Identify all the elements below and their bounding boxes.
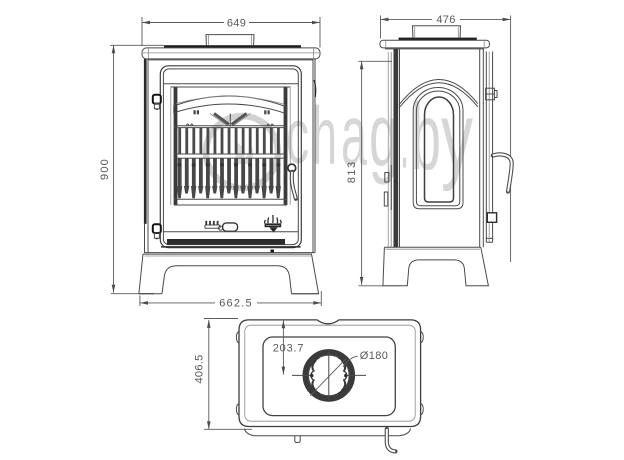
svg-text:813: 813 <box>346 160 358 183</box>
svg-text:649: 649 <box>227 17 246 29</box>
svg-text:h: h <box>312 91 337 182</box>
svg-text:y: y <box>441 82 473 192</box>
svg-text:662.5: 662.5 <box>219 298 253 310</box>
svg-text:476: 476 <box>436 14 455 26</box>
svg-text:Ø180: Ø180 <box>360 350 389 362</box>
svg-text:900: 900 <box>99 158 111 180</box>
svg-text:203.7: 203.7 <box>273 343 305 355</box>
svg-text:406.5: 406.5 <box>194 354 206 383</box>
